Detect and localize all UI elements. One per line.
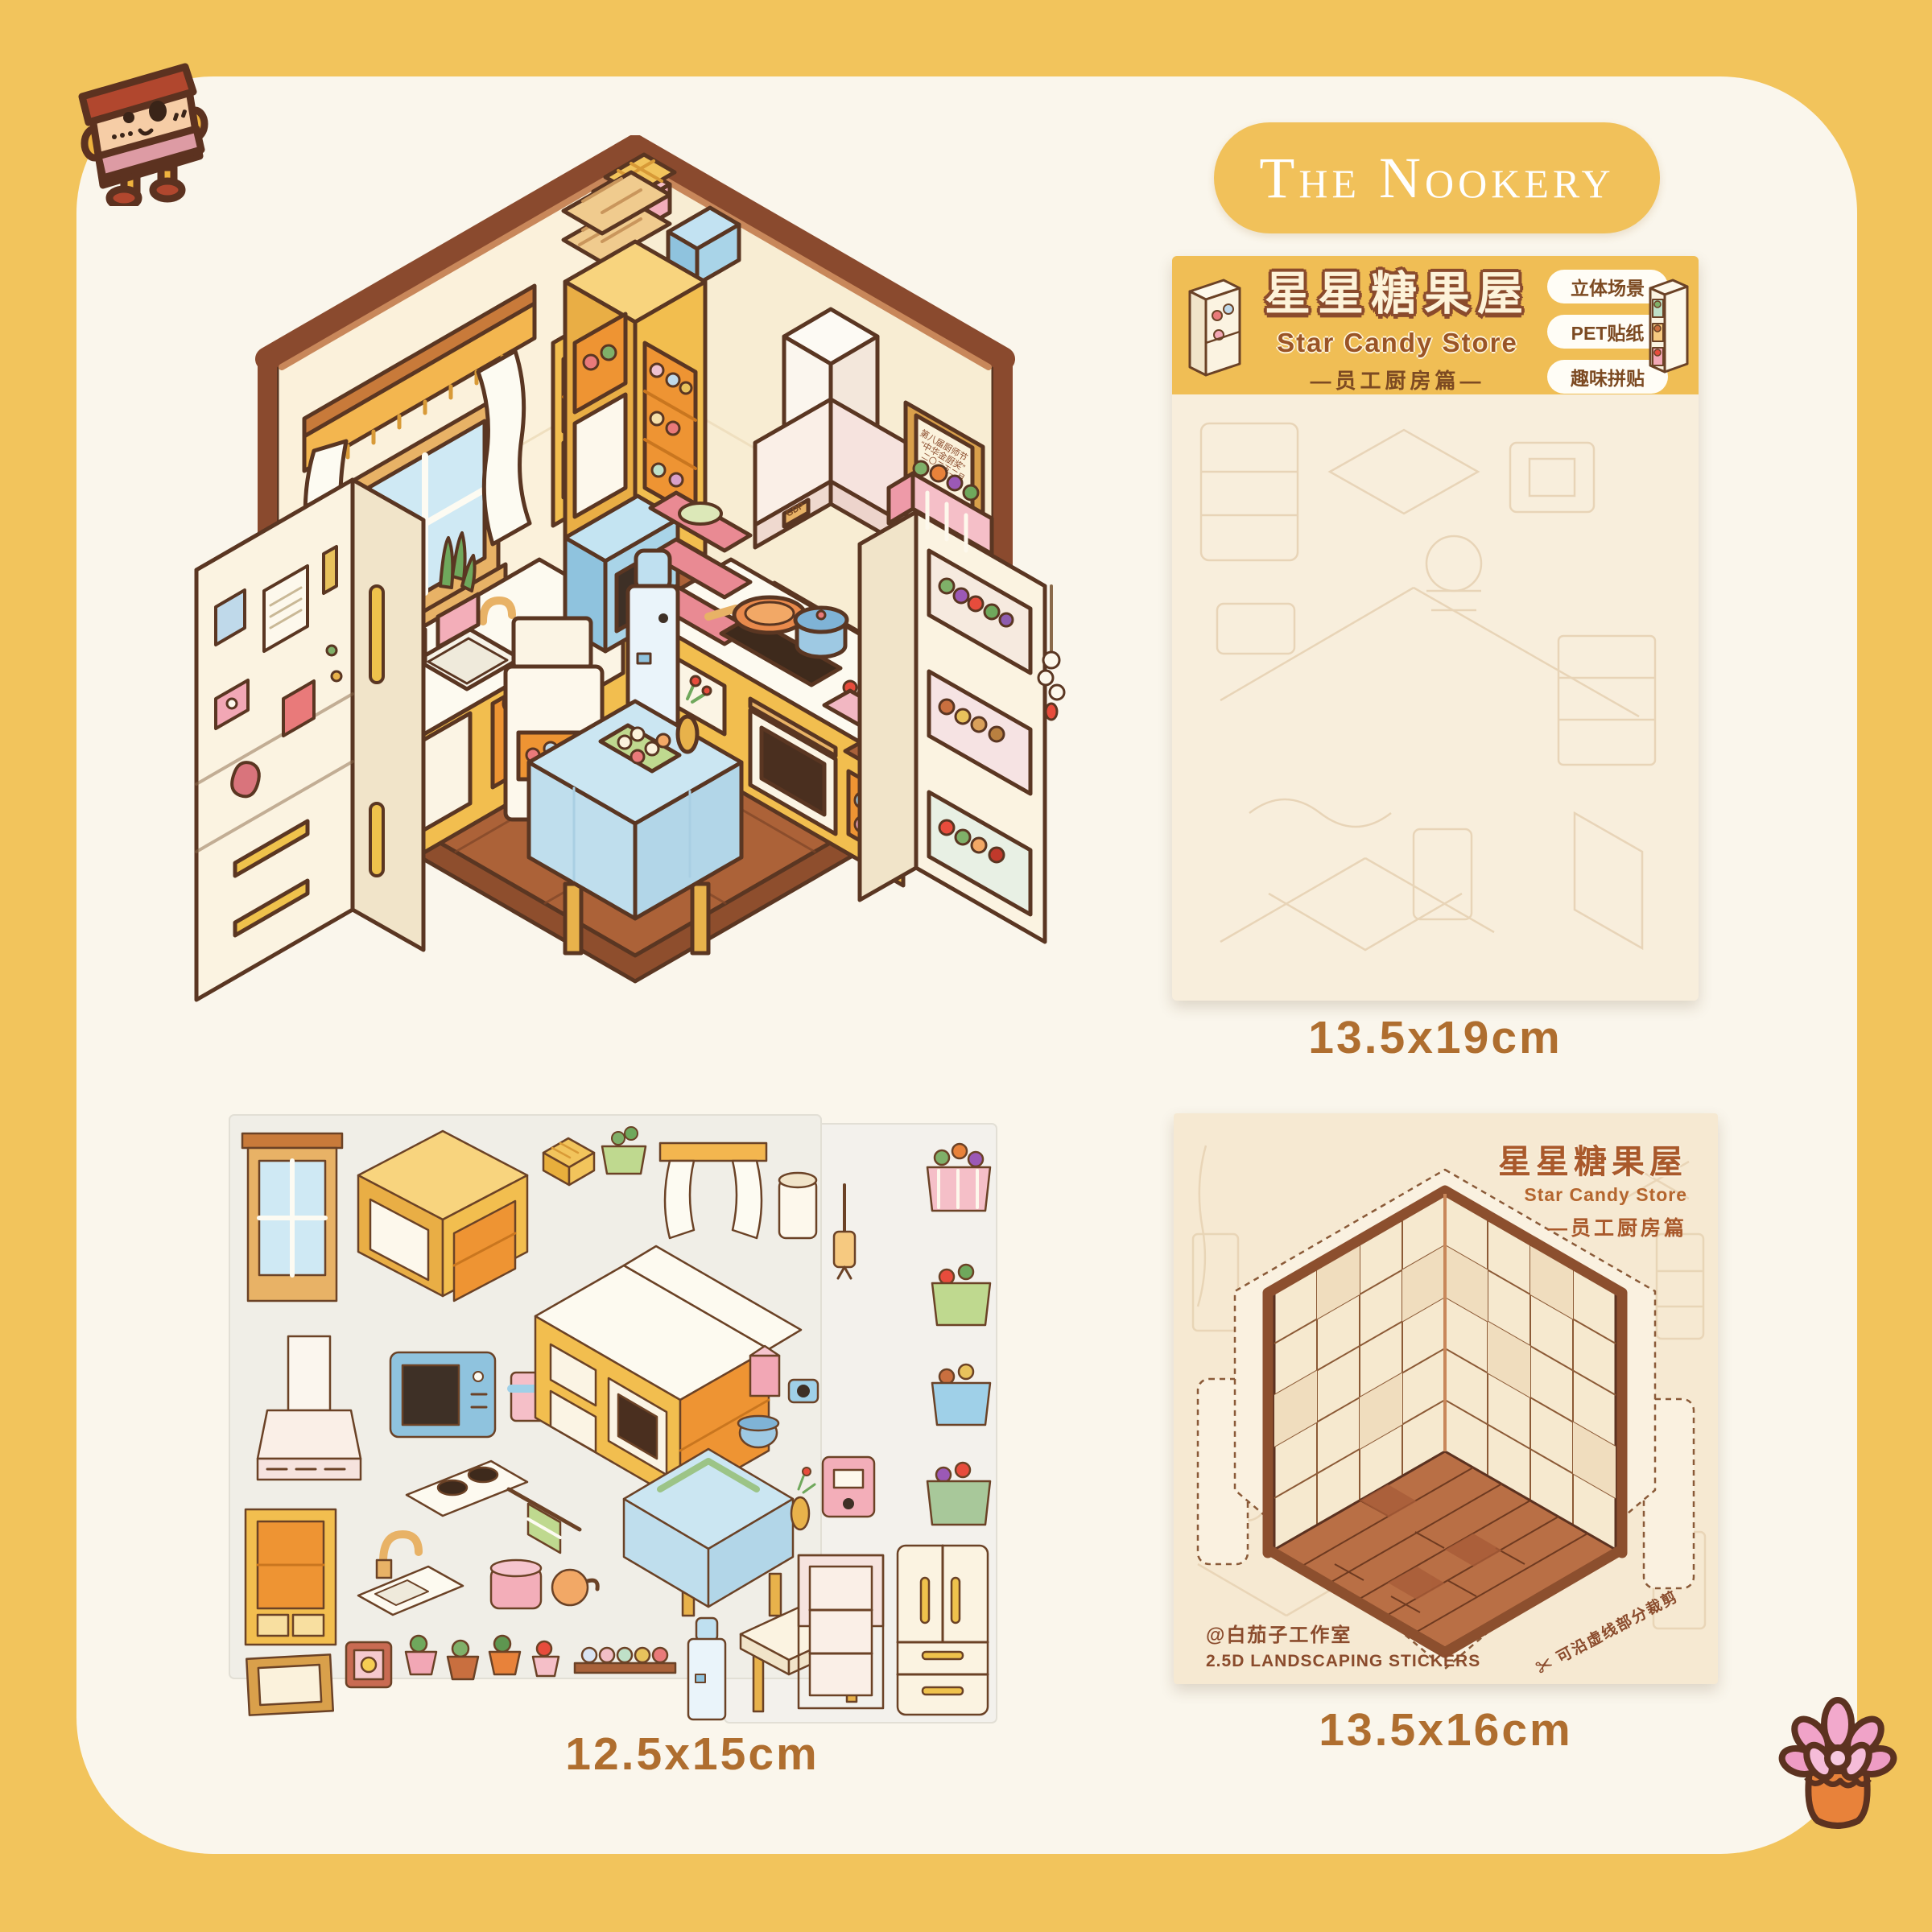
package-header: 星星糖果屋 Star Candy Store —员工厨房篇— 立体场景 PET贴…	[1172, 256, 1699, 394]
produce-shelf	[860, 461, 1064, 942]
sticker-rice-cooker	[491, 1560, 541, 1608]
background-card-title-block: 星星糖果屋 Star Candy Store —员工厨房篇	[1498, 1134, 1687, 1241]
background-card-title-en: Star Candy Store	[1524, 1184, 1687, 1206]
sticker-milk-carton	[750, 1346, 779, 1396]
package-title-en: Star Candy Store	[1277, 328, 1518, 358]
package-subtitle: —员工厨房篇—	[1310, 365, 1484, 394]
sheet-size-label: 12.5x15cm	[451, 1728, 934, 1781]
package-size-label: 13.5x19cm	[1172, 1011, 1699, 1064]
background-card-footer: @白茄子工作室 2.5D LANDSCAPING STICKERS	[1206, 1619, 1480, 1671]
background-card-title-cn: 星星糖果屋	[1498, 1134, 1687, 1183]
background-card: 星星糖果屋 Star Candy Store —员工厨房篇 @白茄子工作室 2.…	[1174, 1113, 1718, 1684]
package-title-block: 星星糖果屋 Star Candy Store —员工厨房篇—	[1253, 264, 1542, 386]
background-card-size-label: 13.5x16cm	[1174, 1703, 1718, 1757]
sticker-sauce-pot	[738, 1416, 778, 1447]
fridge	[196, 480, 423, 1000]
sticker-window	[242, 1133, 342, 1301]
succulent-icon	[1769, 1684, 1906, 1833]
sticker-star-frame	[346, 1642, 391, 1687]
package-faint-art	[1172, 394, 1699, 1001]
sticker-wall-shelf	[246, 1509, 336, 1645]
sticker-microwave	[390, 1352, 495, 1437]
brand-logo-text: The Nookery	[1259, 145, 1614, 212]
package-title-cn: 星星糖果屋	[1265, 257, 1530, 323]
sticker-pink-cabinet	[799, 1555, 883, 1708]
brand-logo: The Nookery	[1214, 122, 1660, 233]
background-card-subtitle: —员工厨房篇	[1547, 1212, 1687, 1241]
sticker-coffee-machine	[823, 1457, 874, 1517]
kitchen-scene-illustration: GDP 第八届厨师节 “中华金厨奖” 二〇二五二月	[187, 135, 1084, 1025]
sticker-camera	[789, 1380, 818, 1402]
sticker-spice-strip	[575, 1648, 675, 1673]
sticker-paper-towel	[779, 1173, 816, 1238]
product-type-line: 2.5D LANDSCAPING STICKERS	[1206, 1652, 1480, 1671]
sticker-sheets	[225, 1111, 1002, 1727]
package-header-fridge-icon	[1183, 274, 1246, 380]
product-listing-image: The Nookery	[0, 0, 1932, 1932]
studio-credit: @白茄子工作室	[1206, 1619, 1480, 1647]
sticker-plaque	[246, 1654, 333, 1715]
package-card: 星星糖果屋 Star Candy Store —员工厨房篇— 立体场景 PET贴…	[1172, 256, 1699, 1001]
package-header-shelf-icon	[1645, 277, 1692, 377]
sticker-fridge-tall	[898, 1546, 988, 1715]
